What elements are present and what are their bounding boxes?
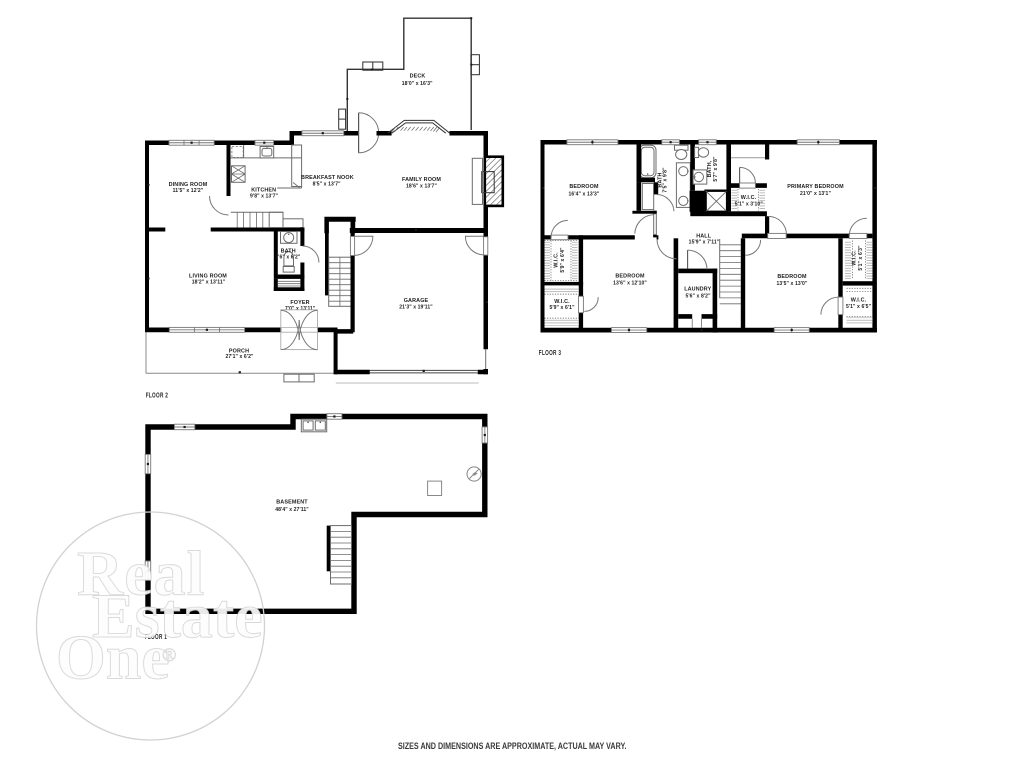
svg-text:3'6" x 6'2": 3'6" x 6'2" <box>275 254 301 260</box>
svg-text:8'5" x 13'7": 8'5" x 13'7" <box>313 181 342 187</box>
svg-text:DECK: DECK <box>410 74 426 80</box>
svg-text:FAMILY ROOM: FAMILY ROOM <box>402 177 441 183</box>
svg-text:9'8" x 13'7": 9'8" x 13'7" <box>250 193 279 199</box>
svg-text:W.I.C.: W.I.C. <box>851 298 867 304</box>
svg-text:5'9" x 6'1": 5'9" x 6'1" <box>549 305 575 311</box>
svg-text:21'3" x 19'11": 21'3" x 19'11" <box>399 305 433 311</box>
svg-text:W.I.C.: W.I.C. <box>554 252 560 268</box>
svg-text:5'1" x 6'5": 5'1" x 6'5" <box>846 304 872 310</box>
svg-text:LAUNDRY: LAUNDRY <box>684 287 711 293</box>
svg-text:BEDROOM: BEDROOM <box>777 274 807 280</box>
svg-text:BREAKFAST NOOK: BREAKFAST NOOK <box>301 175 354 181</box>
svg-text:27'1" x 6'2": 27'1" x 6'2" <box>225 354 254 360</box>
svg-text:®: ® <box>162 645 176 666</box>
svg-text:18'6" x 13'7": 18'6" x 13'7" <box>406 183 437 189</box>
svg-text:BASEMENT: BASEMENT <box>276 500 308 506</box>
svg-text:FLOOR 3: FLOOR 3 <box>539 348 562 357</box>
svg-text:5'1" x 6'3": 5'1" x 6'3" <box>858 245 864 271</box>
svg-text:W.I.C.: W.I.C. <box>741 195 757 201</box>
svg-text:16'4" x 13'3": 16'4" x 13'3" <box>569 192 600 198</box>
svg-text:21'0" x 13'1": 21'0" x 13'1" <box>800 191 831 197</box>
svg-text:13'5" x 13'0": 13'5" x 13'0" <box>777 281 808 287</box>
svg-text:18'0" x 16'3": 18'0" x 16'3" <box>402 81 433 87</box>
svg-text:BEDROOM: BEDROOM <box>615 274 645 280</box>
svg-text:13'6" x 12'10": 13'6" x 12'10" <box>613 280 647 286</box>
svg-text:One: One <box>56 622 170 693</box>
svg-text:PRIMARY BEDROOM: PRIMARY BEDROOM <box>787 184 844 190</box>
svg-text:5'6" x 8'2": 5'6" x 8'2" <box>685 293 711 299</box>
svg-text:7'5" x 9'8": 7'5" x 9'8" <box>663 167 669 193</box>
svg-text:7'0" x 13'11": 7'0" x 13'11" <box>285 306 316 312</box>
svg-text:48'4" x 27'11": 48'4" x 27'11" <box>275 507 309 513</box>
svg-text:5'1" x 3'10": 5'1" x 3'10" <box>735 201 764 207</box>
svg-text:FLOOR 2: FLOOR 2 <box>146 391 169 400</box>
svg-text:GARAGE: GARAGE <box>404 298 429 304</box>
svg-text:5'9" x 6'4": 5'9" x 6'4" <box>560 247 566 273</box>
svg-text:5'7" x 9'8": 5'7" x 9'8" <box>713 156 719 182</box>
svg-text:SIZES AND DIMENSIONS ARE APPRO: SIZES AND DIMENSIONS ARE APPROXIMATE, AC… <box>398 741 627 751</box>
svg-text:11'5" x 12'2": 11'5" x 12'2" <box>173 188 204 194</box>
svg-text:18'2" x 13'11": 18'2" x 13'11" <box>192 280 226 286</box>
svg-text:15'9" x 7'11": 15'9" x 7'11" <box>689 240 720 246</box>
svg-text:W.I.C.: W.I.C. <box>852 250 858 266</box>
svg-text:HALL: HALL <box>696 233 712 239</box>
svg-text:BEDROOM: BEDROOM <box>569 184 599 190</box>
